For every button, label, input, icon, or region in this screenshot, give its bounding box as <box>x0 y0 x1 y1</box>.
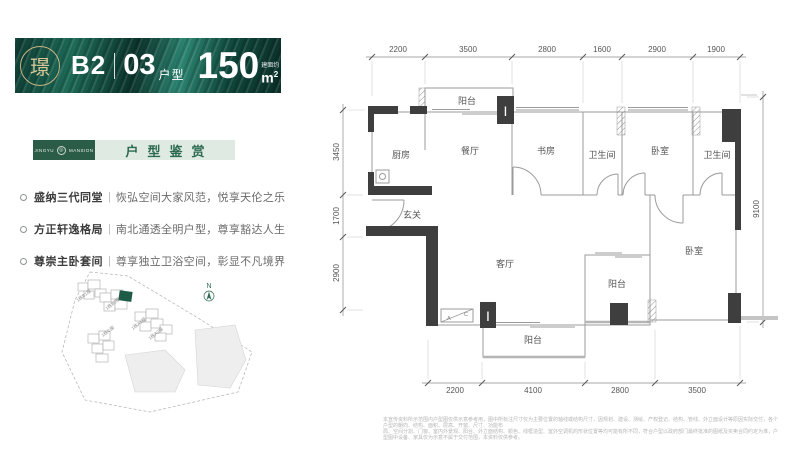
point-desc: 尊享独立卫浴空间，彰显不凡境界 <box>116 253 286 269</box>
dim-left: 1700 <box>332 207 341 225</box>
area-value: 150 <box>198 47 260 84</box>
area-unit: m2 <box>261 69 278 84</box>
dim-top: 3500 <box>459 45 477 54</box>
point-separator: | <box>108 255 111 267</box>
ac-label-a: A <box>447 316 451 322</box>
point-title: 尊崇主卧套间 <box>34 253 103 269</box>
point-title: 盛纳三代同堂 <box>34 189 103 205</box>
room-label-entry: 玄关 <box>403 209 421 220</box>
dim-top: 1600 <box>593 45 611 54</box>
hatched-walls <box>419 88 700 322</box>
dimension-ticks <box>340 54 766 386</box>
room-label-study: 书房 <box>537 145 555 156</box>
dim-top: 1900 <box>707 45 725 54</box>
disclaimer: 本宣传资料所示范围内户型图仅供示意参考用，图中所标注尺寸仅为主要位置的轴线或结构… <box>383 417 780 441</box>
section-title: 户型鉴赏 <box>116 141 213 160</box>
bullet-icon <box>20 258 27 265</box>
room-label-living: 客厅 <box>496 258 514 269</box>
unit-number: 03 <box>123 49 155 82</box>
disclaimer-line-2: 局、空间分割、门窗、室内外景观、阳台、外立面结构、颜色、线框造型、室外空调机的形… <box>383 429 780 441</box>
brand-badge: JINGYU ◎ MANSION <box>33 140 95 160</box>
room-label-master-bedroom: 卧室 <box>685 245 703 256</box>
brand-name-left: JINGYU <box>34 148 54 153</box>
point-separator: | <box>108 223 111 235</box>
brand-name-right: MANSION <box>69 148 94 153</box>
header-banner: 璟 B2 03 户型 150 建面约 m2 <box>15 38 281 93</box>
section-title-bar: 户型鉴赏 <box>95 140 235 160</box>
project-seal-icon: 璟 <box>20 46 60 86</box>
dim-top: 2900 <box>648 45 666 54</box>
dim-left: 3450 <box>332 143 341 161</box>
ac-unit: A C <box>441 309 473 322</box>
selling-point-2: 方正轩逸格局 | 南北通透全明户型，尊享豁达人生 <box>20 221 315 237</box>
seal-character: 璟 <box>30 51 50 80</box>
flyer-page: 璟 B2 03 户型 150 建面约 m2 JINGYU ◎ MANSION 户… <box>0 0 800 449</box>
dim-top: 2200 <box>389 45 407 54</box>
unit-label: 户型 <box>159 66 185 83</box>
column-marker-icon: I <box>486 308 490 324</box>
room-label-balcony-top: 阳台 <box>458 95 476 106</box>
point-title: 方正轩逸格局 <box>34 221 103 237</box>
block-code: B2 <box>71 50 106 81</box>
bullet-icon <box>20 226 27 233</box>
room-label-bedroom-2: 卧室 <box>651 145 669 156</box>
brand-emblem-icon: ◎ <box>57 146 66 155</box>
point-desc: 恢弘空间大家风范，悦享天伦之乐 <box>116 189 286 205</box>
dim-right: 9100 <box>752 200 761 218</box>
ac-label-c: C <box>464 312 468 318</box>
selling-point-1: 盛纳三代同堂 | 恢弘空间大家风范，悦享天伦之乐 <box>20 189 315 205</box>
room-label-balcony-right: 阳台 <box>608 278 626 289</box>
site-plan: 1栋B1座 1栋B2座 1栋A1座 1栋A2座 1栋C座 N <box>50 268 265 418</box>
room-label-bath-2: 卫生间 <box>703 149 730 160</box>
room-label-kitchen: 厨房 <box>392 149 410 160</box>
bullet-icon <box>20 194 27 201</box>
floor-plan: 2200 3500 2800 1600 2900 1900 3450 1700 … <box>330 28 795 406</box>
dimension-lines <box>343 57 763 383</box>
disclaimer-line-1: 本宣传资料所示范围内户型图仅供示意参考用，图中所标注尺寸仅为主要位置的轴线或结构… <box>383 417 780 429</box>
future-building <box>125 350 185 392</box>
room-label-bath-1: 卫生间 <box>588 149 615 160</box>
column-markers: I I <box>480 96 514 328</box>
room-label-dining: 餐厅 <box>461 145 479 156</box>
point-separator: | <box>108 191 111 203</box>
column-marker-icon: I <box>504 103 508 119</box>
area-note: 建面约 <box>261 63 279 69</box>
dim-bottom: 4100 <box>524 386 542 395</box>
point-desc: 南北通透全明户型，尊享豁达人生 <box>116 221 286 237</box>
header-divider <box>114 53 115 79</box>
future-building <box>195 325 246 388</box>
dim-bottom: 3500 <box>688 386 706 395</box>
north-label: N <box>206 283 211 290</box>
area-exponent: 2 <box>274 70 278 79</box>
selling-point-3: 尊崇主卧套间 | 尊享独立卫浴空间，彰显不凡境界 <box>20 253 315 269</box>
north-compass-icon: N <box>204 283 214 301</box>
room-label-balcony-bottom: 阳台 <box>524 334 542 345</box>
dim-left: 2900 <box>332 264 341 282</box>
structural-walls <box>366 106 741 326</box>
dim-bottom: 2200 <box>446 386 464 395</box>
area-unit-group: 建面约 m2 <box>261 63 279 84</box>
dim-top: 2800 <box>538 45 556 54</box>
dim-bottom: 2800 <box>611 386 629 395</box>
